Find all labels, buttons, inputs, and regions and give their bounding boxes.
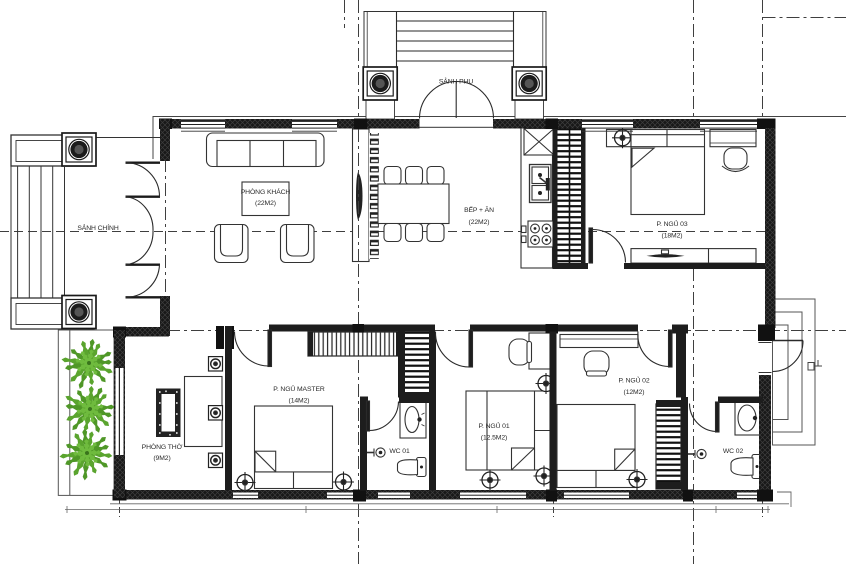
svg-text:P. NGỦ 03: P. NGỦ 03 xyxy=(656,219,687,228)
svg-text:P. NGỦ MASTER: P. NGỦ MASTER xyxy=(273,384,325,393)
svg-text:SẢNH PHỤ: SẢNH PHỤ xyxy=(439,77,474,86)
svg-text:(22M2): (22M2) xyxy=(255,200,276,207)
svg-text:PHÒNG THỜ: PHÒNG THỜ xyxy=(142,442,183,451)
svg-text:WC 01: WC 01 xyxy=(389,448,410,455)
svg-text:PHÒNG KHÁCH: PHÒNG KHÁCH xyxy=(241,187,291,196)
svg-text:(22M2): (22M2) xyxy=(469,219,490,226)
svg-text:P. NGỦ 01: P. NGỦ 01 xyxy=(478,421,509,430)
svg-text:SẢNH CHÍNH: SẢNH CHÍNH xyxy=(77,223,118,232)
svg-text:P. NGỦ 02: P. NGỦ 02 xyxy=(618,376,649,385)
svg-text:WC 02: WC 02 xyxy=(723,448,744,455)
svg-text:(12M2): (12M2) xyxy=(624,389,645,396)
svg-text:(12.5M2): (12.5M2) xyxy=(481,435,507,442)
svg-text:(18M2): (18M2) xyxy=(662,233,683,240)
svg-text:(9M2): (9M2) xyxy=(153,455,170,462)
svg-text:(14M2): (14M2) xyxy=(289,398,310,405)
